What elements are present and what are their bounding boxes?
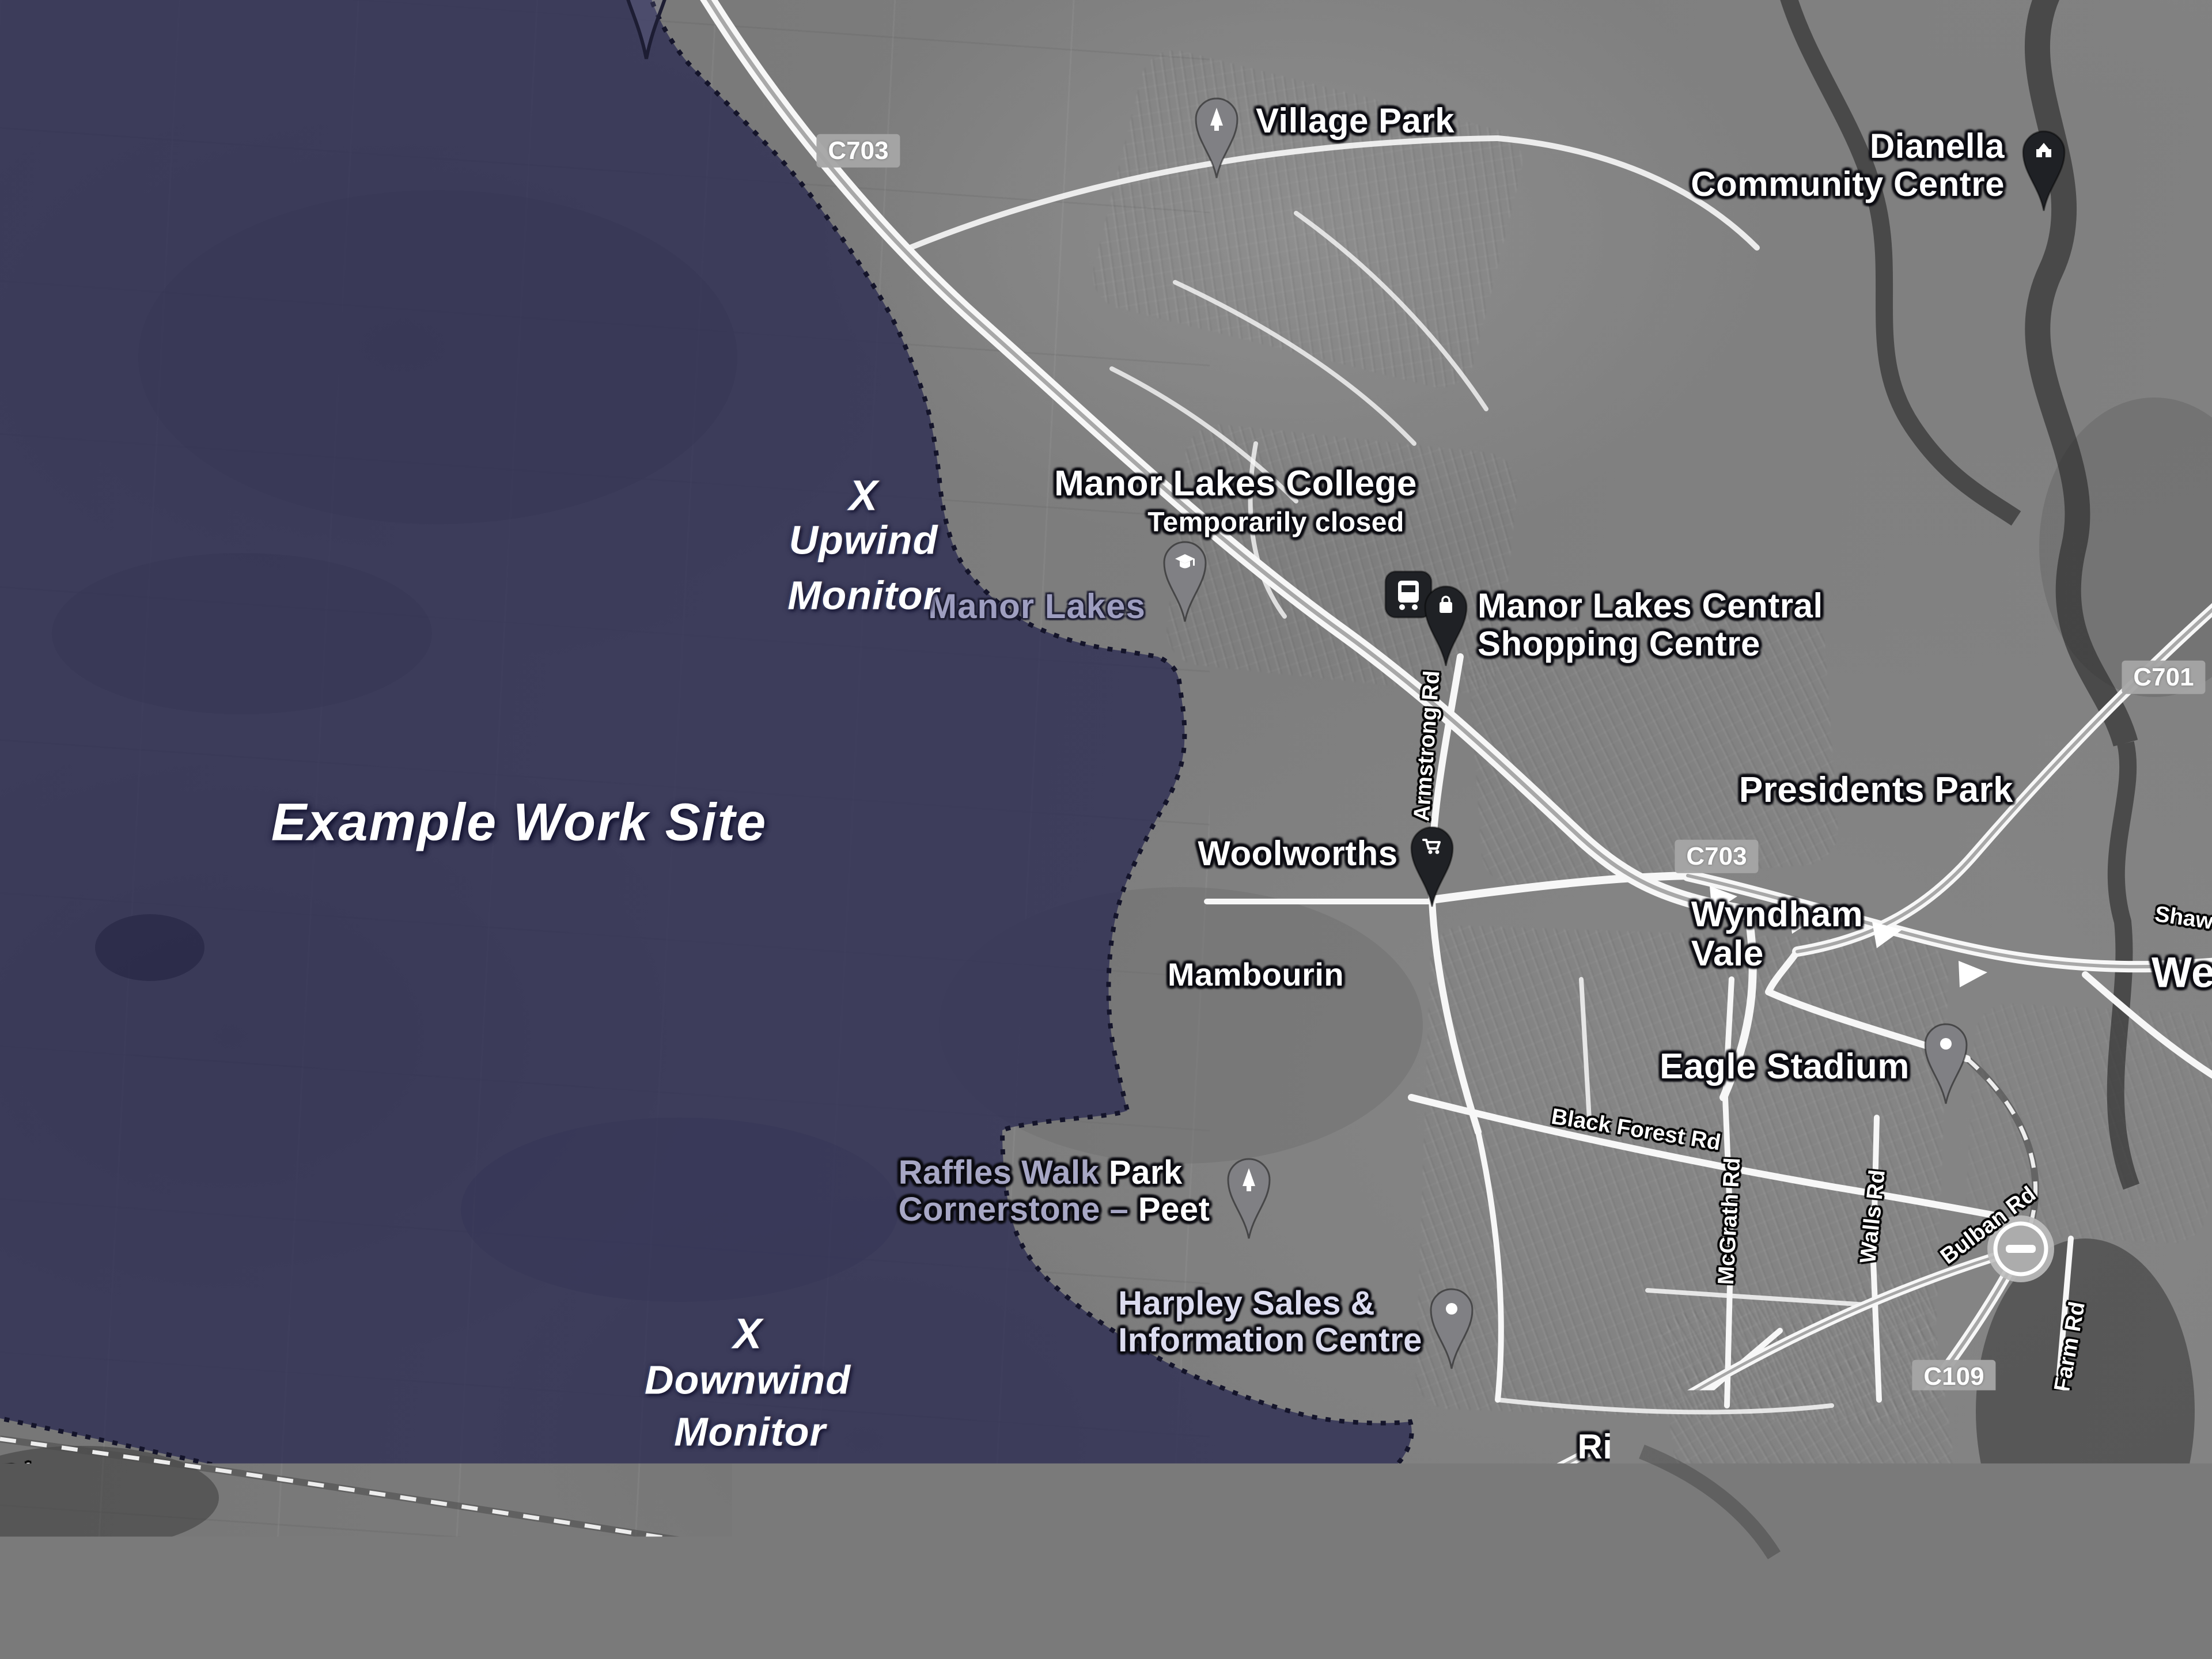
shaws-rd-label: Shaws <box>2153 902 2212 937</box>
hanson-quarry-label[interactable]: Hanson Werribee Quarry <box>514 1488 914 1525</box>
manor-lakes-locality-label: Manor Lakes <box>928 588 1146 626</box>
armstrong-rd-label: Armstrong Rd <box>1410 670 1445 823</box>
scale-bar-segment <box>152 1629 224 1657</box>
dianella-community-centre-label[interactable]: DianellaCommunity Centre <box>1691 127 2005 203</box>
alfred-rd-label: Alfred Rd <box>1722 1502 1826 1542</box>
raffles-cornerstone-label[interactable]: Raffles Walk ParkCornerstone – Peet <box>899 1154 1210 1228</box>
wyndham-vale-label: WyndhamVale <box>1691 895 1863 974</box>
downwind-monitor-label-2: Monitor <box>674 1410 826 1455</box>
downwind-monitor-label-1: Downwind <box>645 1358 851 1403</box>
scale-bar-segment <box>509 1629 581 1657</box>
route-c703-shield-1: C703 <box>816 134 900 168</box>
farm-rd-label: Farm Rd <box>2050 1300 2090 1393</box>
upwind-monitor-x: X <box>849 472 878 518</box>
route-c701-shield: C701 <box>2122 661 2205 694</box>
werribee-locality-label: Werribee <box>2076 1490 2212 1538</box>
scale-bar-segment <box>295 1629 366 1657</box>
bulban-rd-label-1: Rd <box>1 1460 33 1487</box>
scale-bar-segment <box>9 1629 81 1657</box>
woolworths-label[interactable]: Woolworths <box>1198 835 1397 873</box>
manor-lakes-college-label[interactable]: Manor Lakes College <box>1054 464 1417 503</box>
mambourin-label: Mambourin <box>1168 957 1344 993</box>
bulban-rd-label-2: Bulban Rd <box>190 1508 305 1548</box>
bulban-rd-label-3: Bulban Rd <box>546 1561 661 1605</box>
bulban-rd-label-4: Bulban Rd <box>1232 1553 1347 1604</box>
rang-locality-label: Rang <box>2134 1541 2212 1590</box>
harpley-sales-label[interactable]: Harpley Sales &Information Centre <box>1118 1285 1422 1359</box>
map-canvas[interactable]: Village ParkDianellaCommunity CentreMano… <box>0 0 2212 1659</box>
example-work-site-label: Example Work Site <box>271 793 767 851</box>
village-park-label[interactable]: Village Park <box>1256 102 1455 140</box>
black-forest-rd-label: Black Forest Rd <box>1550 1105 1722 1156</box>
upwind-monitor-label-2: Monitor <box>787 574 940 618</box>
wer-locality-label: Wer <box>2152 949 2212 995</box>
upwind-monitor-label-1: Upwind <box>789 518 938 563</box>
map-scale-bar <box>9 1629 581 1657</box>
mcgrath-rd-label: McGrath Rd <box>1714 1157 1745 1286</box>
temporarily-closed-label: Temporarily closed <box>1147 508 1404 539</box>
scale-bar-segment <box>366 1629 438 1657</box>
presidents-park-label[interactable]: Presidents Park <box>1739 771 2013 810</box>
scale-bar-segment <box>224 1629 295 1657</box>
route-c109-shield: C109 <box>1912 1360 1995 1393</box>
route-c703-shield-2: C703 <box>1675 840 1758 873</box>
manor-lakes-central-label[interactable]: Manor Lakes CentralShopping Centre <box>1478 587 1823 663</box>
walls-rd-label: Walls Rd <box>1856 1169 1891 1265</box>
scale-bar-segment <box>81 1629 152 1657</box>
downwind-monitor-x: X <box>733 1310 762 1357</box>
eagle-stadium-label[interactable]: Eagle Stadium <box>1660 1047 1910 1086</box>
scale-bar-segment <box>438 1629 509 1657</box>
riverwalk-village-park-label[interactable]: Riverwalk Village Park <box>1578 1428 1950 1466</box>
